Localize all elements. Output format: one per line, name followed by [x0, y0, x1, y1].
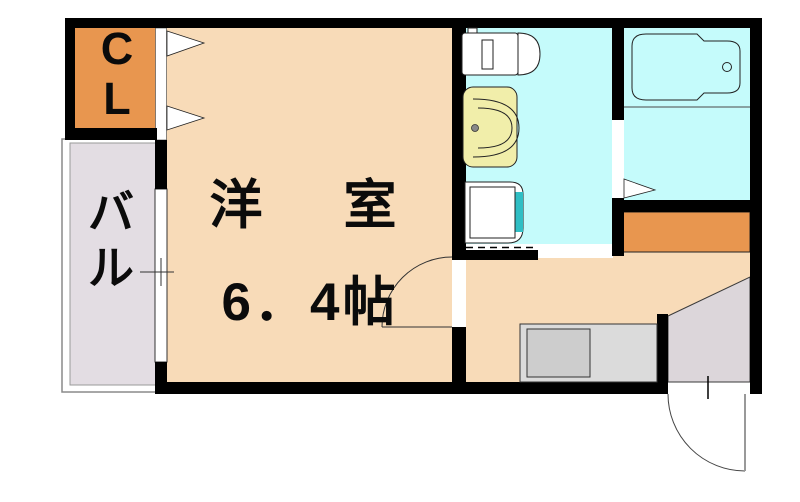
floor-plan: C L バ ル 洋 室 6．4帖: [0, 0, 800, 502]
main-room-label: 洋 室 6．4帖: [167, 140, 453, 370]
room-divider-wall-lower: [452, 327, 466, 382]
closet-door-opening: [156, 28, 167, 140]
storage-box: [623, 212, 750, 252]
main-room-name: 洋 室: [167, 176, 453, 236]
vanity-unit: [463, 87, 517, 167]
room-door-opening: [452, 255, 466, 327]
hall-corner-wall: [612, 212, 624, 256]
bath-door-opening: [612, 120, 624, 198]
closet-label: C L: [86, 24, 148, 124]
closet-bottom-wall: [65, 128, 157, 140]
bath-divider-wall-upper: [612, 18, 624, 120]
toilet-lid-detail: [482, 40, 493, 69]
balcony-label: バ ル: [78, 184, 144, 296]
west-wall-upper: [155, 140, 167, 189]
washer-accent: [515, 192, 523, 232]
kitchen-counter: [520, 324, 657, 382]
bottom-wall: [155, 382, 668, 394]
toilet-room-south-wall: [452, 250, 538, 260]
entrance-west-wall: [657, 314, 668, 394]
entrance-opening: [668, 382, 750, 394]
wash-basin: [463, 87, 519, 167]
washing-machine-space: [465, 182, 523, 243]
main-room-size: 6．4帖: [167, 272, 453, 334]
bath-south-wall: [612, 200, 750, 212]
right-wall: [750, 18, 762, 394]
left-wall: [65, 18, 75, 128]
entrance-door-arc: [668, 394, 745, 471]
top-wall: [65, 18, 762, 28]
counter-sink: [527, 329, 590, 377]
toilet: [462, 28, 540, 75]
faucet-dot: [472, 125, 479, 132]
washer-body: [470, 187, 515, 238]
bath-room-floor: [624, 28, 750, 200]
